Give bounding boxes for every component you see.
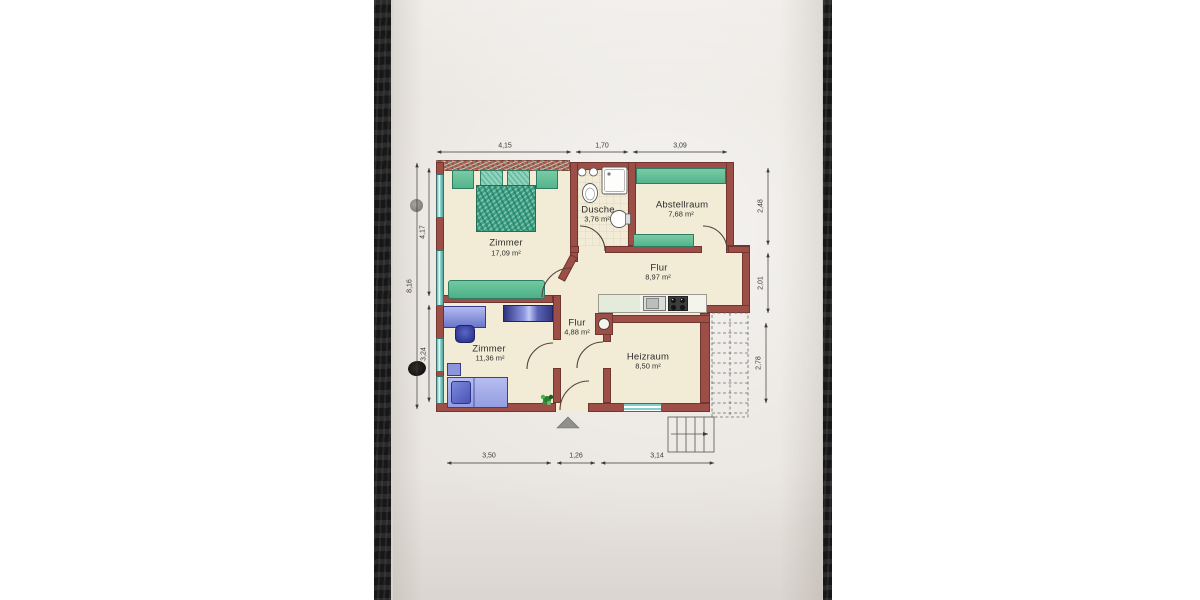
wall-flur-north-c: [728, 246, 750, 253]
room-area-abstellraum: 7,68 m²: [668, 210, 693, 219]
wall-flur-north-a: [570, 246, 579, 253]
wall-right-flur: [742, 245, 750, 313]
window: [436, 338, 444, 372]
dim-bottom-1: 3,50: [482, 453, 496, 460]
wall-heizraum-left-b: [603, 368, 611, 403]
nightstand-icon: [536, 170, 558, 189]
room-area-heizraum: 8,50 m²: [635, 362, 660, 371]
shelf-icon: [633, 234, 694, 247]
window: [436, 376, 444, 404]
sink-basin-icon: [646, 298, 659, 309]
dim-right-3: 2,78: [756, 356, 763, 370]
dim-right-1: 2,48: [758, 199, 765, 213]
room-area-dusche: 3,76 m²: [584, 215, 609, 224]
wall-boiler-block: [595, 313, 613, 335]
stove-icon: [668, 296, 688, 311]
dim-left-outer: 8,16: [407, 279, 414, 293]
dim-right-2: 2,01: [758, 276, 765, 290]
dim-bottom-2: 1,26: [569, 453, 583, 460]
kitchen-counter-tint: [599, 295, 640, 312]
photo-background-right: [822, 0, 832, 600]
office-chair-icon: [455, 325, 475, 343]
pillow-icon: [451, 381, 471, 404]
wall-right-heizraum: [700, 313, 710, 403]
dim-top-3: 3,09: [673, 143, 687, 150]
wall-stair-top: [700, 305, 750, 313]
double-bed-icon: [476, 185, 536, 232]
dim-bottom-3: 3,14: [650, 453, 664, 460]
wall-right-abstellraum: [726, 162, 734, 252]
nightstand-icon: [452, 170, 474, 189]
wall-zimmer2-flur-a: [553, 295, 561, 340]
window: [436, 250, 444, 306]
dim-left-inner-1: 4,17: [420, 225, 427, 239]
shelf-icon: [636, 168, 726, 184]
wall-heizraum-top: [596, 315, 710, 323]
floorplan-photo: Zimmer 17,09 m² Dusche 3,76 m² Abstellra…: [0, 0, 1200, 600]
wall-flur-north-b: [605, 246, 702, 253]
dim-left-inner-2: 3,24: [421, 347, 428, 361]
wardrobe-icon: [503, 305, 553, 322]
dim-top-1: 4,15: [498, 143, 512, 150]
sofa-icon: [448, 280, 545, 299]
photo-background-left: [374, 0, 393, 600]
dim-top-2: 1,70: [595, 143, 609, 150]
room-area-flur1: 8,97 m²: [645, 273, 670, 282]
wall-zimmer2-flur-b: [553, 368, 561, 403]
room-label-zimmer1: Zimmer: [489, 238, 522, 249]
punch-hole: [410, 199, 423, 212]
window: [623, 403, 662, 412]
room-area-zimmer1: 17,09 m²: [491, 249, 521, 258]
window: [436, 174, 444, 218]
nightstand-icon: [447, 363, 461, 376]
room-area-flur2: 4,88 m²: [564, 328, 589, 337]
room-area-zimmer2: 11,36 m²: [475, 354, 504, 363]
